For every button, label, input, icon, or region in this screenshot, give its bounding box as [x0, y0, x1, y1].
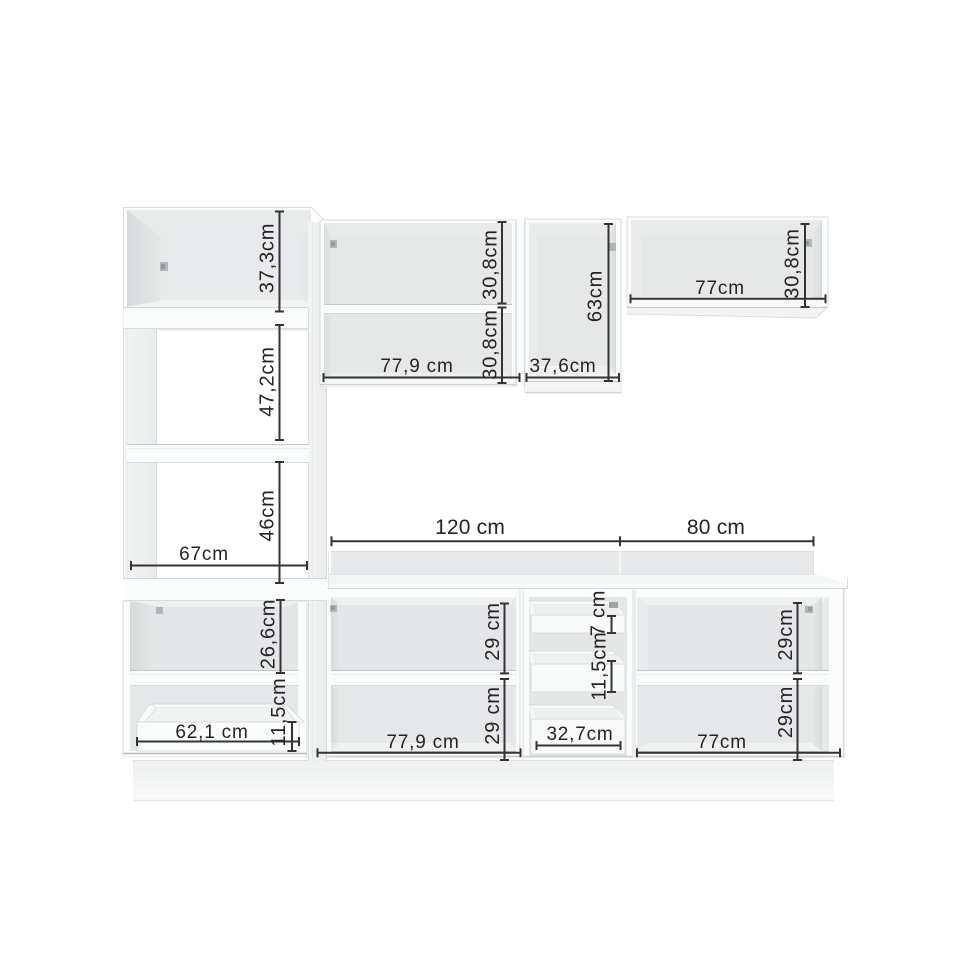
- svg-text:120 cm: 120 cm: [435, 516, 505, 539]
- svg-text:29cm: 29cm: [775, 686, 797, 738]
- svg-text:46cm: 46cm: [257, 489, 279, 541]
- svg-text:29 cm: 29 cm: [482, 602, 504, 660]
- svg-text:67cm: 67cm: [179, 544, 229, 565]
- svg-text:37,3cm: 37,3cm: [257, 223, 279, 293]
- svg-text:77,9 cm: 77,9 cm: [380, 356, 453, 377]
- svg-text:7 cm: 7 cm: [588, 590, 610, 637]
- svg-text:63cm: 63cm: [585, 270, 607, 322]
- svg-text:77cm: 77cm: [695, 278, 745, 299]
- svg-text:32,7cm: 32,7cm: [546, 724, 613, 745]
- svg-text:11,5cm: 11,5cm: [589, 632, 611, 701]
- svg-text:11,5cm: 11,5cm: [268, 678, 290, 747]
- svg-text:80 cm: 80 cm: [687, 516, 745, 539]
- svg-text:29 cm: 29 cm: [482, 686, 504, 744]
- svg-text:62,1 cm: 62,1 cm: [175, 722, 248, 743]
- svg-text:77cm: 77cm: [697, 732, 747, 753]
- svg-text:77,9 cm: 77,9 cm: [386, 732, 459, 753]
- svg-text:29cm: 29cm: [775, 608, 797, 660]
- svg-text:30,8cm: 30,8cm: [480, 309, 502, 379]
- svg-text:30,8cm: 30,8cm: [782, 228, 804, 298]
- svg-text:47,2cm: 47,2cm: [257, 346, 279, 416]
- svg-text:37,6cm: 37,6cm: [529, 356, 596, 377]
- svg-text:30,8cm: 30,8cm: [480, 229, 502, 299]
- svg-text:26,6cm: 26,6cm: [258, 599, 280, 669]
